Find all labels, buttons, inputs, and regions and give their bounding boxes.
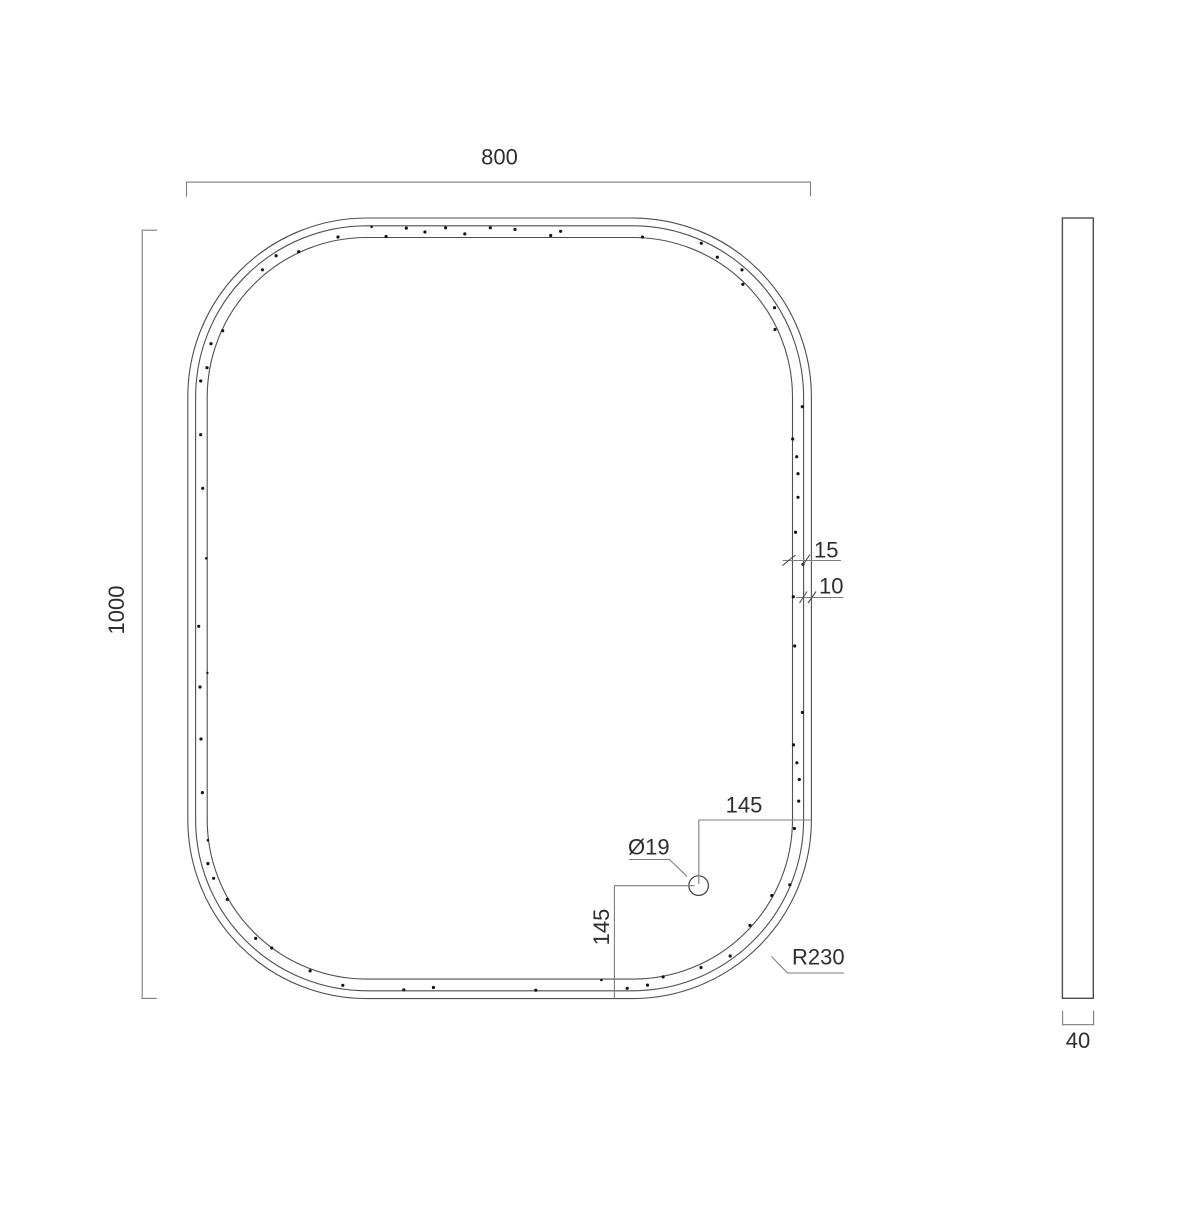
svg-text:145: 145 [726,792,763,817]
svg-text:15: 15 [814,538,838,563]
svg-text:1000: 1000 [104,586,129,635]
svg-text:800: 800 [481,145,518,170]
svg-text:145: 145 [589,909,614,946]
svg-text:Ø19: Ø19 [628,835,670,860]
svg-text:R230: R230 [792,945,845,970]
svg-text:40: 40 [1066,1028,1090,1053]
svg-text:10: 10 [819,574,843,599]
